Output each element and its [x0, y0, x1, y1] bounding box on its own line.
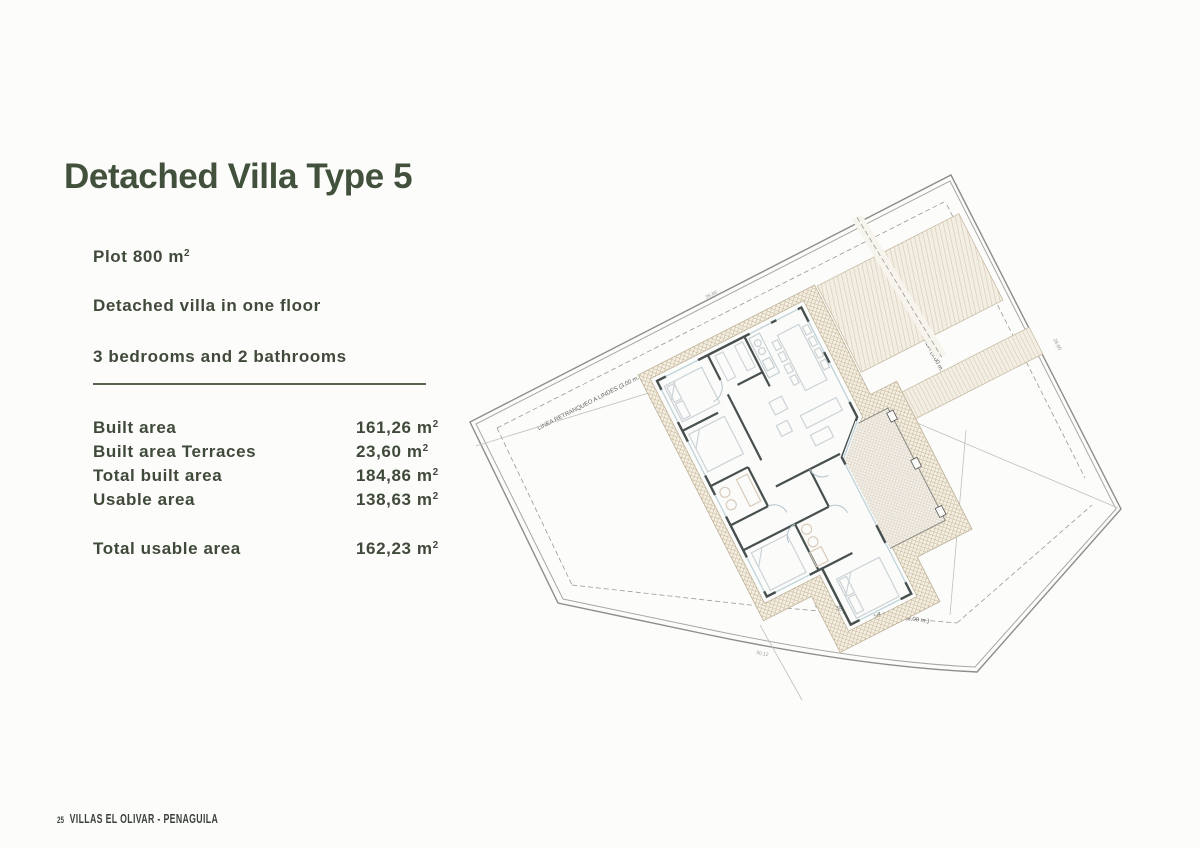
svg-text:LINEA RETRANQUEO A LINDES (3,0: LINEA RETRANQUEO A LINDES (3,00 m.)	[537, 374, 642, 432]
svg-text:30,12: 30,12	[755, 650, 769, 658]
svg-text:35,86: 35,86	[705, 289, 719, 300]
svg-text:28,80: 28,80	[1051, 338, 1062, 352]
